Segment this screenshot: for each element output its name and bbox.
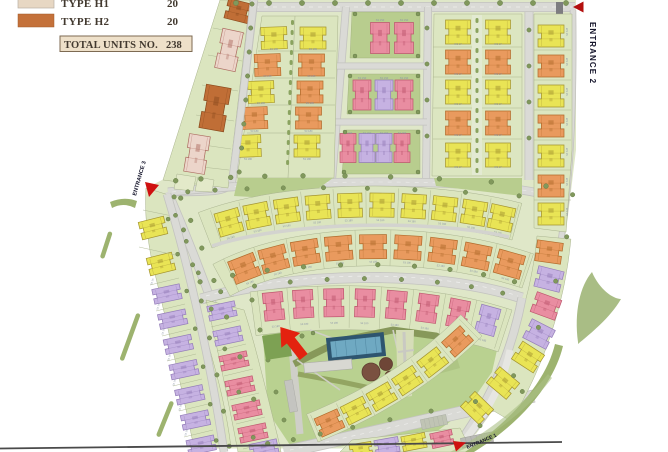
svg-text:S3 1S0: S3 1S0 [380, 131, 389, 135]
svg-text:W1 1S: W1 1S [565, 208, 569, 216]
svg-text:W1 1S: W1 1S [565, 148, 569, 156]
svg-text:TYPE H2: TYPE H2 [61, 16, 109, 28]
svg-text:W2 17: W2 17 [454, 102, 462, 106]
svg-text:S3 1S0: S3 1S0 [376, 18, 385, 22]
svg-text:W1 1S: W1 1S [565, 58, 569, 66]
svg-text:W2 17: W2 17 [454, 133, 462, 137]
svg-text:W2 17: W2 17 [454, 165, 462, 169]
svg-text:53 180: 53 180 [251, 129, 259, 133]
svg-text:S3 1S0: S3 1S0 [398, 131, 407, 135]
svg-text:20: 20 [167, 16, 179, 28]
svg-text:53 180: 53 180 [403, 260, 412, 264]
svg-text:53 180: 53 180 [300, 322, 309, 326]
svg-text:53 180: 53 180 [244, 157, 252, 161]
svg-text:W2 17: W2 17 [494, 72, 502, 76]
svg-text:W2 17: W2 17 [454, 72, 462, 76]
svg-text:53 180: 53 180 [408, 219, 417, 223]
svg-text:W1 1S: W1 1S [565, 118, 569, 126]
svg-text:53 180: 53 180 [305, 129, 313, 133]
svg-text:53 180: 53 180 [309, 47, 317, 51]
svg-text:TOTAL UNITS NO.: TOTAL UNITS NO. [64, 40, 158, 51]
svg-text:W2 17: W2 17 [494, 102, 502, 106]
svg-text:238: 238 [166, 40, 182, 51]
svg-text:W1 1S: W1 1S [565, 88, 569, 96]
svg-text:TYPE H1: TYPE H1 [61, 0, 109, 10]
svg-text:ENTRANCE 2: ENTRANCE 2 [588, 22, 597, 84]
svg-text:53 180: 53 180 [345, 218, 354, 222]
svg-text:53 180: 53 180 [270, 47, 278, 51]
svg-text:53 180: 53 180 [360, 321, 369, 325]
svg-text:S3 1S0: S3 1S0 [380, 76, 389, 80]
svg-text:W1 1S: W1 1S [565, 28, 569, 36]
svg-text:53 180: 53 180 [264, 74, 272, 78]
svg-text:53 180: 53 180 [313, 220, 322, 225]
svg-text:S3 1S0: S3 1S0 [400, 76, 409, 80]
svg-text:W2 17: W2 17 [494, 165, 502, 169]
svg-text:53 180: 53 180 [306, 101, 314, 105]
svg-text:W1 1S: W1 1S [565, 178, 569, 186]
svg-text:53 180: 53 180 [376, 218, 385, 222]
svg-text:S3 1S0: S3 1S0 [400, 18, 409, 22]
svg-text:20: 20 [167, 0, 179, 10]
svg-text:W2 17: W2 17 [454, 42, 462, 46]
svg-text:53 180: 53 180 [308, 74, 316, 78]
svg-text:W2 17: W2 17 [494, 133, 502, 137]
svg-text:S3 1S0: S3 1S0 [358, 76, 367, 80]
svg-text:53 180: 53 180 [257, 101, 265, 105]
svg-text:53 180: 53 180 [391, 322, 400, 327]
svg-text:53 180: 53 180 [303, 157, 311, 161]
svg-text:W2 17: W2 17 [494, 42, 502, 46]
svg-text:53 180: 53 180 [330, 321, 339, 325]
svg-text:S3 1S0: S3 1S0 [363, 131, 372, 135]
